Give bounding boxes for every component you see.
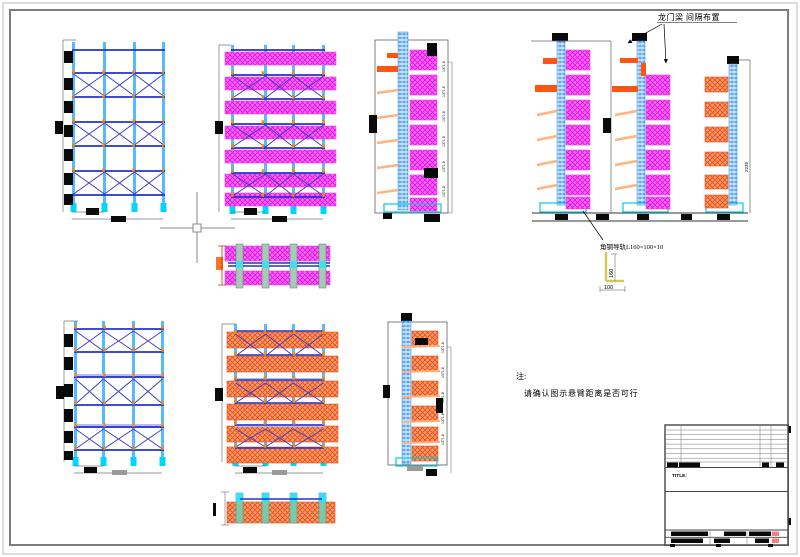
section-view-magenta: 1371.8 1371.8 1371.8 1371.8 1371.8 1371.… <box>369 32 452 222</box>
level-dim-text: 1371.8 <box>441 367 445 378</box>
level-dim-text: 1371.8 <box>441 434 445 445</box>
front-elevation-braced-bottom <box>56 321 164 475</box>
note: 注: 请确认图示悬臂距离是否可行 <box>516 371 638 398</box>
rail-width-dim: 100 <box>604 285 613 291</box>
guide-rail-callout: 角钢导轨L160×100×10 160 100 <box>583 211 663 292</box>
plan-view-orange <box>213 492 335 525</box>
front-elevation-loaded-magenta <box>215 45 336 222</box>
rail-height-dim: 160 <box>609 269 615 278</box>
level-dim-text: 1371.8 <box>442 61 446 72</box>
title-label: TITLE: <box>672 473 687 479</box>
cad-sheet[interactable]: 1371.8 1371.8 1371.8 1371.8 1371.8 1371.… <box>0 0 800 557</box>
section-view-orange: 1371.8 1371.8 1371.8 1371.8 1371.8 <box>383 313 451 476</box>
rack-section-1 <box>535 33 590 212</box>
crosshair-cursor <box>160 192 235 263</box>
level-dim-text: 1371.8 <box>442 111 446 122</box>
front-elevation-loaded-orange <box>215 324 338 475</box>
level-dim-text: 1371.8 <box>442 186 446 197</box>
rack-section-2 <box>612 33 670 212</box>
level-dim-text: 1371.8 <box>442 136 446 147</box>
drawing-canvas[interactable]: 1371.8 1371.8 1371.8 1371.8 1371.8 1371.… <box>0 0 800 557</box>
load-blocks-magenta <box>410 50 437 211</box>
rack-section-3: 2235 <box>705 56 750 213</box>
level-dim-text: 1371.8 <box>442 161 446 172</box>
note-text: 请确认图示悬臂距离是否可行 <box>524 388 638 398</box>
plan-view-magenta <box>216 244 330 288</box>
gantry-beam-label: 龙门梁 间隔布置 <box>658 12 720 22</box>
guide-rail-label: 角钢导轨L160×100×10 <box>600 242 663 251</box>
cantilever-rack-group: 2235 龙门梁 间隔布置 角钢导轨L160×100×10 160 100 <box>531 12 750 292</box>
title-block: TITLE: <box>665 425 788 547</box>
level-dim-text: 1371.8 <box>441 392 445 403</box>
rack-height-dim: 2235 <box>744 161 749 172</box>
cantilever-arms <box>377 53 398 193</box>
level-dim-text: 1371.8 <box>442 86 446 97</box>
front-elevation-braced-top <box>55 40 165 222</box>
note-prefix: 注: <box>516 371 526 381</box>
level-dim-text: 1371.8 <box>441 413 445 424</box>
level-dim-text: 1371.8 <box>441 342 445 353</box>
